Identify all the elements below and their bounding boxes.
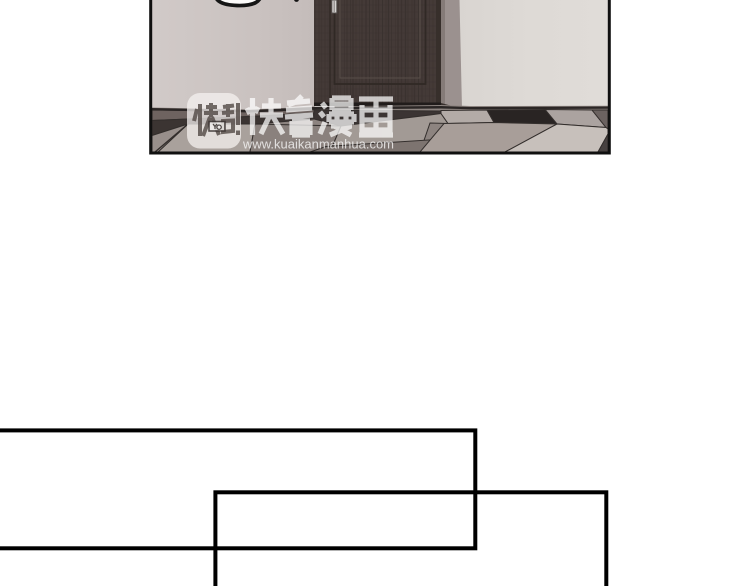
svg-text:www.kuaikanmanhua.com: www.kuaikanmanhua.com — [242, 137, 394, 152]
